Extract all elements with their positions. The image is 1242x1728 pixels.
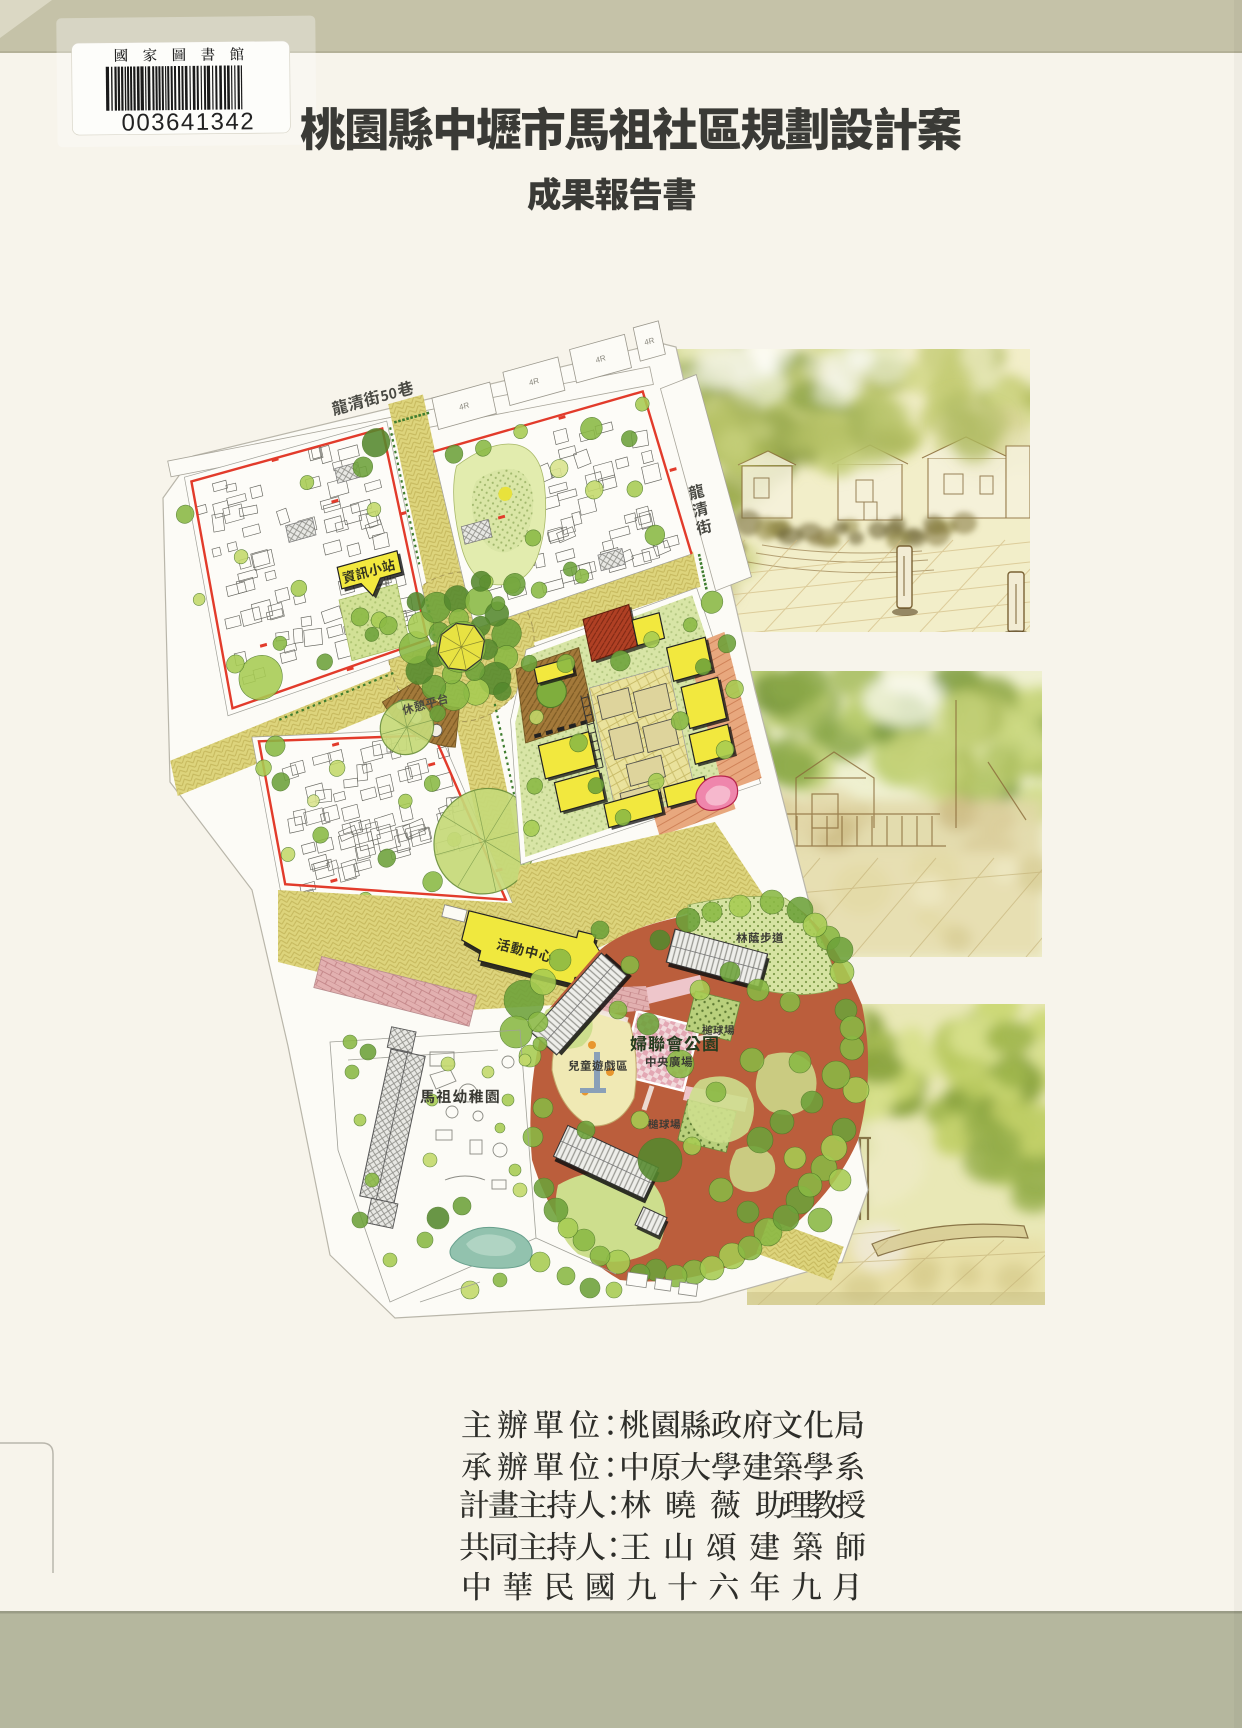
svg-text:003641342: 003641342 xyxy=(121,108,255,136)
